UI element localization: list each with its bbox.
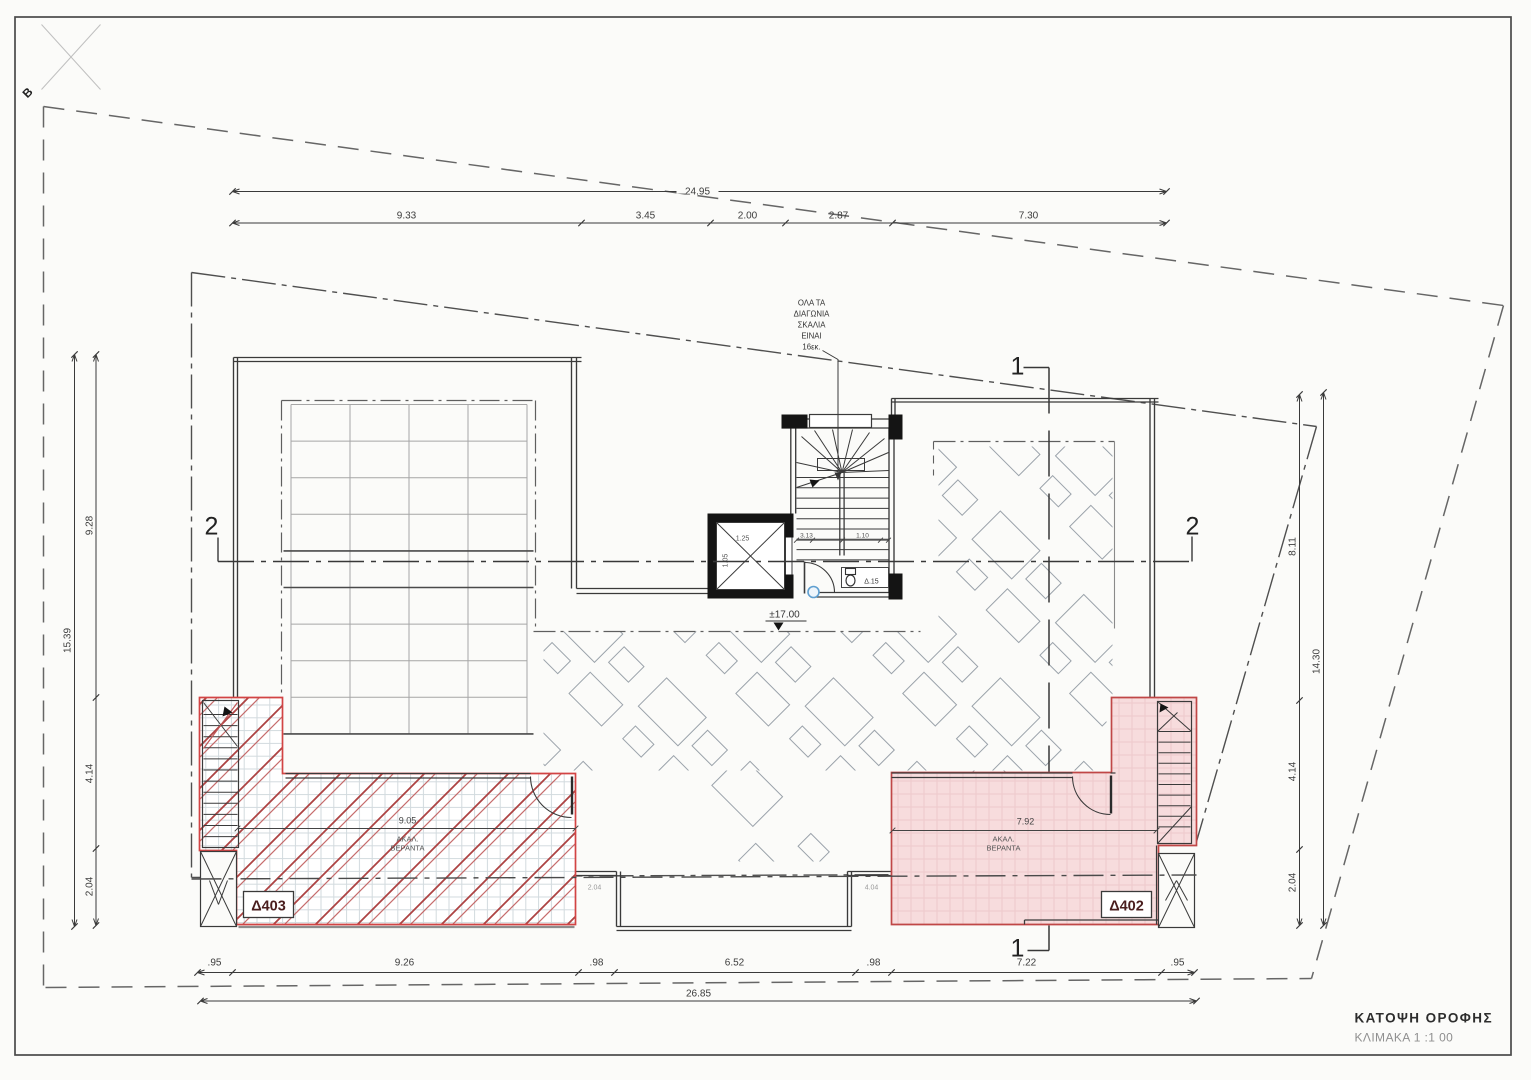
svg-text:1.25: 1.25: [736, 536, 750, 543]
svg-text:ΑΚΑΛ.: ΑΚΑΛ.: [396, 835, 418, 844]
svg-text:6.52: 6.52: [725, 958, 745, 969]
svg-text:ΒΕΡΑΝΤΑ: ΒΕΡΑΝΤΑ: [391, 844, 425, 853]
svg-text:1.10: 1.10: [856, 533, 869, 540]
svg-text:3.45: 3.45: [636, 211, 656, 222]
svg-text:9.28: 9.28: [85, 515, 96, 535]
svg-text:3.13: 3.13: [800, 533, 813, 540]
svg-text:.95: .95: [208, 958, 222, 969]
svg-text:.98: .98: [867, 958, 881, 969]
svg-text:8.11: 8.11: [1288, 537, 1299, 556]
svg-text:9.26: 9.26: [395, 958, 415, 969]
svg-text:7.30: 7.30: [1019, 211, 1039, 222]
svg-text:ΣΚΑΛΙΑ: ΣΚΑΛΙΑ: [798, 321, 827, 330]
svg-text:16εκ.: 16εκ.: [802, 343, 820, 352]
svg-text:2.00: 2.00: [738, 211, 758, 222]
svg-text:1: 1: [1011, 353, 1025, 381]
svg-text:4.04: 4.04: [865, 885, 879, 892]
svg-text:2.04: 2.04: [85, 876, 96, 896]
svg-text:.95: .95: [1171, 958, 1185, 969]
svg-text:24.95: 24.95: [685, 187, 710, 198]
svg-text:15.39: 15.39: [63, 628, 74, 653]
svg-text:2: 2: [205, 513, 219, 541]
svg-text:ΑΚΑΛ.: ΑΚΑΛ.: [992, 835, 1014, 844]
svg-text:26.85: 26.85: [686, 989, 711, 1000]
svg-text:2.04: 2.04: [588, 885, 602, 892]
svg-text:2.87: 2.87: [829, 211, 849, 222]
svg-text:±17.00: ±17.00: [769, 610, 800, 621]
svg-text:2.04: 2.04: [1288, 872, 1299, 892]
svg-text:Δ402: Δ402: [1109, 899, 1144, 915]
svg-text:ΚΛΙΜΑΚΑ 1 :1 00: ΚΛΙΜΑΚΑ 1 :1 00: [1355, 1031, 1454, 1045]
svg-text:Δ403: Δ403: [251, 899, 286, 915]
svg-text:7.92: 7.92: [1017, 817, 1035, 827]
svg-text:ΟΛΑ ΤΑ: ΟΛΑ ΤΑ: [798, 299, 826, 308]
svg-text:Δ.15: Δ.15: [864, 579, 879, 586]
svg-text:4.14: 4.14: [85, 763, 96, 783]
svg-text:1.05: 1.05: [723, 554, 730, 568]
svg-text:ΒΕΡΑΝΤΑ: ΒΕΡΑΝΤΑ: [987, 844, 1021, 853]
svg-text:9.33: 9.33: [397, 211, 417, 222]
svg-text:.98: .98: [590, 958, 604, 969]
svg-text:9.05: 9.05: [399, 816, 417, 826]
svg-text:ΚΑΤΟΨΗ ΟΡΟΦΗΣ: ΚΑΤΟΨΗ ΟΡΟΦΗΣ: [1355, 1011, 1493, 1026]
svg-text:7.22: 7.22: [1017, 958, 1037, 969]
svg-text:ΕΙΝΑΙ: ΕΙΝΑΙ: [801, 332, 821, 341]
svg-text:14.30: 14.30: [1312, 649, 1323, 674]
svg-text:ΔΙΑΓΩΝΙΑ: ΔΙΑΓΩΝΙΑ: [794, 310, 830, 319]
svg-text:2: 2: [1186, 513, 1200, 541]
svg-text:4.14: 4.14: [1288, 761, 1299, 781]
